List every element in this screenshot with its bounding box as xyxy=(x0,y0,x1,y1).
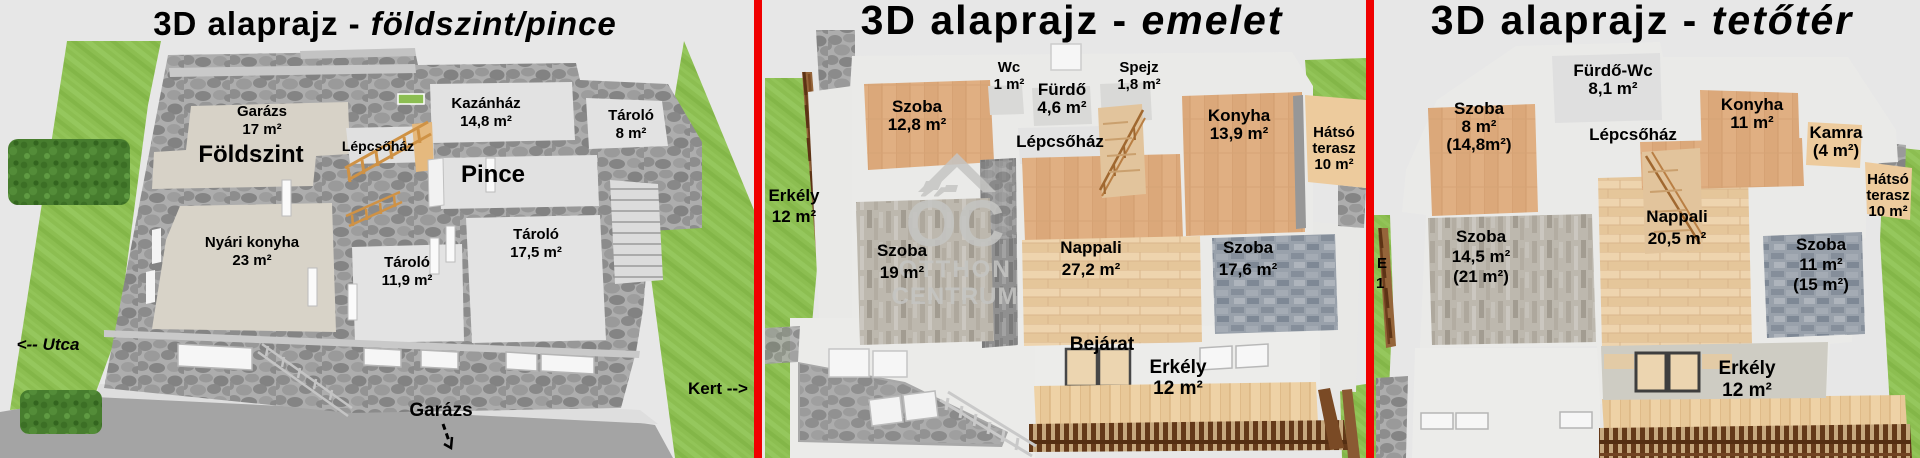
svg-text:Konyha: Konyha xyxy=(1208,106,1271,125)
svg-text:Garázs: Garázs xyxy=(409,400,472,421)
svg-text:12 m²: 12 m² xyxy=(1153,378,1203,399)
svg-text:1 m²: 1 m² xyxy=(994,76,1025,93)
svg-text:Garázs: Garázs xyxy=(237,103,287,120)
svg-text:Hátsó: Hátsó xyxy=(1313,124,1355,141)
svg-text:Tároló: Tároló xyxy=(513,226,559,243)
svg-text:4,6 m²: 4,6 m² xyxy=(1037,98,1086,117)
svg-text:terasz: terasz xyxy=(1866,187,1909,204)
svg-text:17 m²: 17 m² xyxy=(242,121,281,138)
svg-text:Hátsó: Hátsó xyxy=(1867,171,1909,188)
svg-text:3D alaprajz - emelet: 3D alaprajz - emelet xyxy=(861,0,1284,43)
svg-text:(14,8m²): (14,8m²) xyxy=(1446,135,1511,154)
svg-text:Szoba: Szoba xyxy=(1454,99,1505,118)
svg-text:Nappali: Nappali xyxy=(1646,207,1707,226)
svg-text:12 m²: 12 m² xyxy=(1722,380,1772,401)
svg-text:8 m²: 8 m² xyxy=(616,125,647,142)
svg-text:CENTRUM: CENTRUM xyxy=(892,283,1019,310)
svg-text:8,1 m²: 8,1 m² xyxy=(1588,79,1637,98)
svg-text:Erkély: Erkély xyxy=(1718,358,1775,379)
svg-text:13,9 m²: 13,9 m² xyxy=(1210,124,1269,143)
svg-text:10 m²: 10 m² xyxy=(1868,203,1907,220)
svg-text:Bejárat: Bejárat xyxy=(1070,334,1135,355)
svg-text:Tároló: Tároló xyxy=(384,254,430,271)
svg-text:Szoba: Szoba xyxy=(892,97,943,116)
svg-text:10 m²: 10 m² xyxy=(1314,156,1353,173)
svg-text:11,9 m²: 11,9 m² xyxy=(382,272,433,289)
svg-text:Tároló: Tároló xyxy=(608,107,654,124)
svg-text:Szoba: Szoba xyxy=(877,241,928,260)
svg-text:12 m²: 12 m² xyxy=(772,207,817,226)
svg-text:Wc: Wc xyxy=(998,59,1021,76)
svg-text:14,5 m²: 14,5 m² xyxy=(1452,247,1511,266)
svg-text:Nappali: Nappali xyxy=(1060,238,1121,257)
svg-text:(15 m²): (15 m²) xyxy=(1793,275,1849,294)
svg-text:Kamra: Kamra xyxy=(1810,123,1863,142)
svg-text:17,6 m²: 17,6 m² xyxy=(1219,260,1278,279)
svg-text:Spejz: Spejz xyxy=(1119,59,1158,76)
svg-text:Kert -->: Kert --> xyxy=(688,379,748,398)
svg-text:27,2 m²: 27,2 m² xyxy=(1062,260,1121,279)
svg-text:11 m²: 11 m² xyxy=(1730,113,1774,132)
svg-text:Kazánház: Kazánház xyxy=(451,95,520,112)
svg-text:1: 1 xyxy=(1376,275,1384,292)
svg-text:17,5 m²: 17,5 m² xyxy=(510,244,562,261)
svg-text:E: E xyxy=(1377,255,1387,272)
svg-text:Lépcsőház: Lépcsőház xyxy=(342,138,414,154)
svg-text:<-- Utca: <-- Utca xyxy=(17,335,80,354)
svg-text:Szoba: Szoba xyxy=(1456,227,1507,246)
svg-text:14,8 m²: 14,8 m² xyxy=(460,113,512,130)
svg-text:Fürdő-Wc: Fürdő-Wc xyxy=(1573,61,1652,80)
svg-text:12,8 m²: 12,8 m² xyxy=(888,115,947,134)
svg-text:Szoba: Szoba xyxy=(1796,235,1847,254)
svg-text:Nyári konyha: Nyári konyha xyxy=(205,234,300,251)
svg-text:11 m²: 11 m² xyxy=(1799,255,1843,274)
svg-text:23 m²: 23 m² xyxy=(232,252,271,269)
svg-text:terasz: terasz xyxy=(1312,140,1355,157)
svg-text:(4 m²): (4 m²) xyxy=(1813,141,1859,160)
svg-text:Lépcsőház: Lépcsőház xyxy=(1589,125,1677,144)
svg-text:Földszint: Földszint xyxy=(198,141,303,168)
svg-text:Lépcsőház: Lépcsőház xyxy=(1016,132,1104,151)
svg-text:8 m²: 8 m² xyxy=(1462,117,1497,136)
svg-text:Fürdő: Fürdő xyxy=(1038,80,1086,99)
svg-text:Erkély: Erkély xyxy=(768,186,820,205)
svg-text:3D alaprajz - földszint/pince: 3D alaprajz - földszint/pince xyxy=(153,5,617,42)
svg-text:Konyha: Konyha xyxy=(1721,95,1784,114)
svg-text:Pince: Pince xyxy=(461,161,525,188)
svg-text:3D alaprajz - tetőtér: 3D alaprajz - tetőtér xyxy=(1431,0,1854,43)
svg-text:(21 m²): (21 m²) xyxy=(1453,267,1509,286)
svg-text:20,5 m²: 20,5 m² xyxy=(1648,229,1707,248)
svg-text:1,8 m²: 1,8 m² xyxy=(1117,76,1160,93)
svg-text:19 m²: 19 m² xyxy=(880,263,925,282)
svg-text:Szoba: Szoba xyxy=(1223,238,1274,257)
svg-text:Erkély: Erkély xyxy=(1149,357,1206,378)
